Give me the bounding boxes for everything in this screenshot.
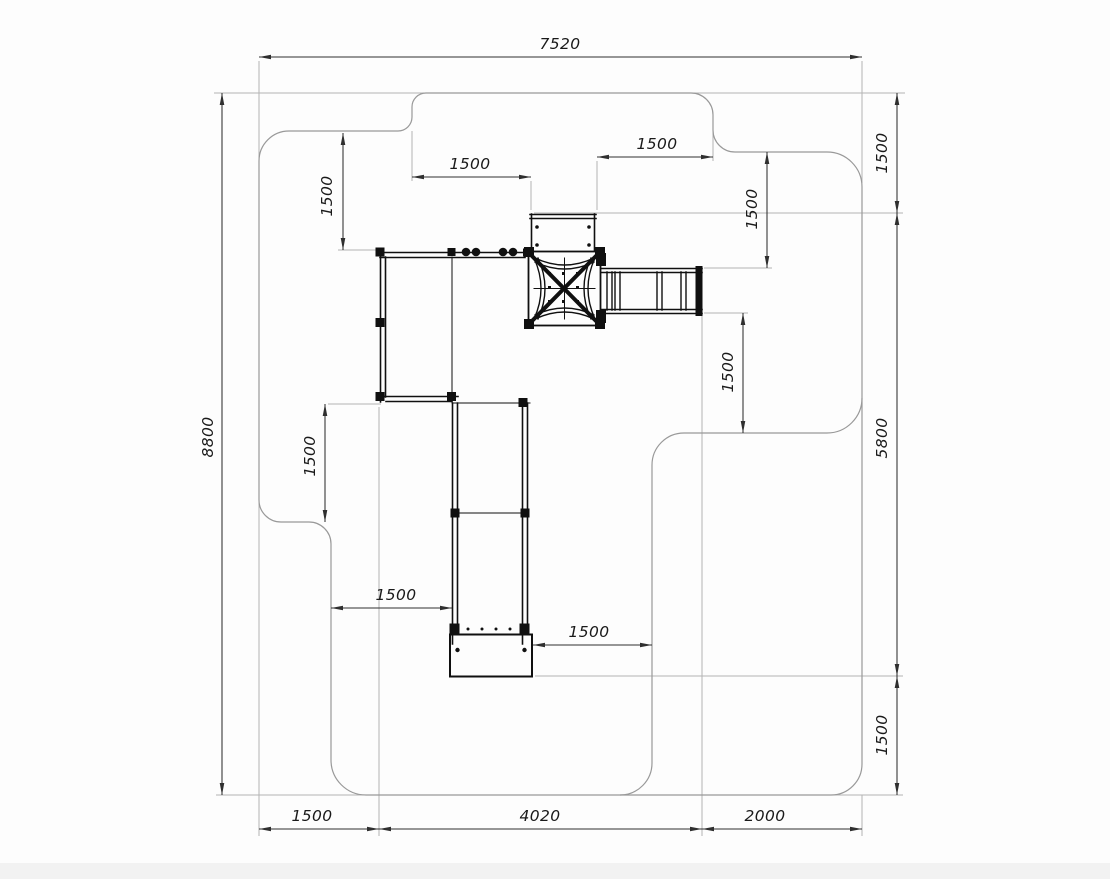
dim-label-overall-height: 8800 bbox=[199, 416, 217, 457]
page-bottom-edge bbox=[0, 863, 1110, 879]
dim-label-right-segment-bottom: 1500 bbox=[873, 714, 891, 755]
dim-label-right-segment-middle: 5800 bbox=[873, 417, 891, 458]
dimension-bottom-segment-center: 4020 bbox=[379, 807, 702, 829]
drawing-page: 7520 8800 1500 1500 1500 1500 1500 bbox=[0, 0, 1110, 879]
dimension-right-segment-middle: 5800 bbox=[873, 213, 897, 676]
dimension-overall-width: 7520 bbox=[259, 35, 862, 57]
dim-label-overall-width: 7520 bbox=[539, 35, 580, 53]
dimension-clearance-left-lower: 1500 bbox=[331, 586, 452, 608]
dim-label-clearance-left-mid: 1500 bbox=[301, 435, 319, 476]
dimensions: 7520 8800 1500 1500 1500 1500 1500 bbox=[199, 35, 897, 829]
dimension-clearance-top-right: 1500 bbox=[597, 135, 713, 157]
dim-label-clearance-right-mid: 1500 bbox=[719, 351, 737, 392]
dimension-clearance-left-top: 1500 bbox=[318, 133, 343, 250]
ramp-walkway bbox=[450, 398, 530, 644]
dim-label-clearance-left-top: 1500 bbox=[318, 175, 336, 216]
dim-label-bottom-segment-left: 1500 bbox=[291, 807, 332, 825]
dim-label-clearance-top-left: 1500 bbox=[449, 155, 490, 173]
dimension-clearance-top-left: 1500 bbox=[412, 155, 531, 177]
dim-label-bottom-segment-center: 4020 bbox=[519, 807, 560, 825]
dim-label-clearance-bottom-mid: 1500 bbox=[568, 623, 609, 641]
play-structure bbox=[376, 214, 703, 677]
left-platform bbox=[376, 248, 532, 404]
dim-label-clearance-right-upper: 1500 bbox=[743, 188, 761, 229]
dimension-right-segment-bottom: 1500 bbox=[873, 676, 897, 795]
dimension-bottom-segment-left: 1500 bbox=[259, 807, 379, 829]
dim-label-right-segment-top: 1500 bbox=[873, 132, 891, 173]
monkey-bars-bridge bbox=[596, 253, 703, 323]
dimension-bottom-segment-right: 2000 bbox=[702, 807, 862, 829]
bottom-platform bbox=[450, 635, 532, 677]
safety-zone-outline bbox=[259, 93, 862, 795]
dimension-overall-height: 8800 bbox=[199, 93, 222, 795]
dimension-right-segment-top: 1500 bbox=[873, 93, 897, 213]
top-platform bbox=[530, 214, 596, 251]
dimension-clearance-bottom-mid: 1500 bbox=[533, 623, 652, 645]
safety-zone-inner-step bbox=[620, 398, 862, 795]
dim-label-clearance-left-lower: 1500 bbox=[375, 586, 416, 604]
dim-label-bottom-segment-right: 2000 bbox=[744, 807, 785, 825]
technical-drawing-canvas: 7520 8800 1500 1500 1500 1500 1500 bbox=[0, 0, 1110, 879]
dim-label-clearance-top-right: 1500 bbox=[636, 135, 677, 153]
dimension-clearance-right-upper: 1500 bbox=[743, 152, 767, 268]
tower-roof bbox=[524, 247, 605, 329]
dimension-clearance-right-mid: 1500 bbox=[719, 313, 743, 433]
dimension-clearance-left-mid: 1500 bbox=[301, 404, 325, 522]
